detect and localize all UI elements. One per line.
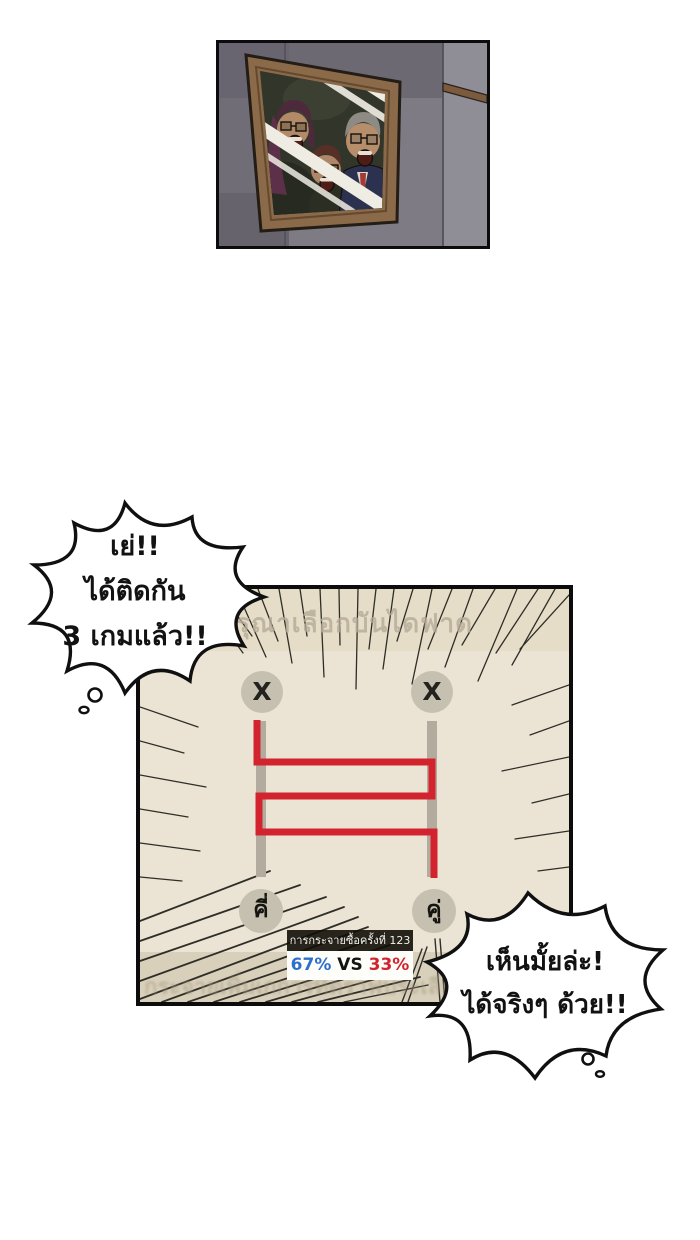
comic-page: รุณาเลือกบันไดฟาด กระจายเพิ่มเกการที่ดรา… xyxy=(0,0,700,1240)
left-bubble-text: เย่!! ได้ติดกัน 3 เกมแล้ว!! xyxy=(30,524,240,659)
photo-panel xyxy=(216,40,490,249)
stats-values: 67% VS 33% xyxy=(287,951,413,980)
stats-right-percent: 33% xyxy=(369,955,410,975)
left-bubble-line2: ได้ติดกัน xyxy=(30,569,240,614)
distribution-stats-box: การกระจายซื้อครั้งที่ 123 67% VS 33% xyxy=(287,930,413,980)
top-right-x-label: X xyxy=(410,677,454,707)
thought-tail-circle xyxy=(583,1054,594,1065)
photo-illustration xyxy=(219,43,487,246)
stats-title: การกระจายซื้อครั้งที่ 123 xyxy=(287,930,413,951)
right-bubble-text: เห็นมั้ยล่ะ! ได้จริงๆ ด้วย!! xyxy=(442,941,648,1027)
thought-tail-circle xyxy=(89,689,102,702)
left-bubble-line3: 3 เกมแล้ว!! xyxy=(30,614,240,659)
stats-left-percent: 67% xyxy=(291,955,332,975)
left-bubble-line1: เย่!! xyxy=(30,524,240,569)
odd-option-label: คี่ xyxy=(239,890,283,930)
right-bubble-line1: เห็นมั้ยล่ะ! xyxy=(442,941,648,984)
ladder-path-red xyxy=(257,720,434,878)
right-bubble-line2: ได้จริงๆ ด้วย!! xyxy=(442,984,648,1027)
thought-tail-circle-small xyxy=(80,707,89,713)
thought-tail-circle-small xyxy=(596,1071,604,1077)
stats-vs: VS xyxy=(337,955,362,975)
